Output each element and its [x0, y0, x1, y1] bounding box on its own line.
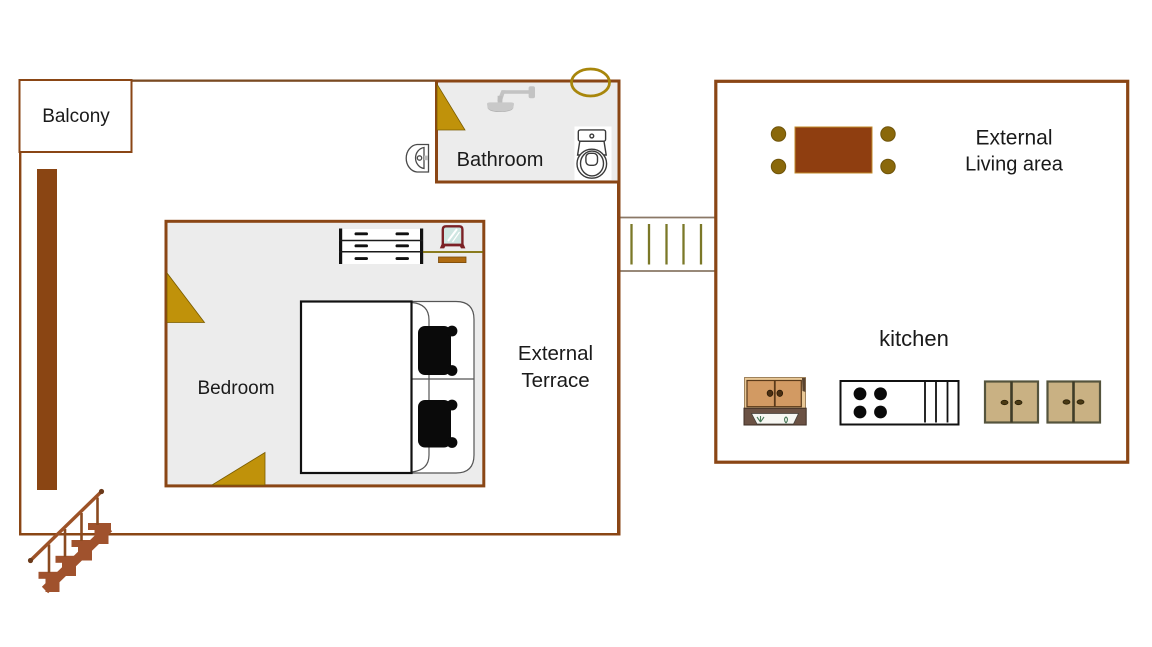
svg-text:Balcony: Balcony	[42, 106, 110, 127]
svg-text:kitchen: kitchen	[879, 326, 949, 351]
svg-text:External: External	[975, 127, 1052, 150]
svg-text:Bathroom: Bathroom	[457, 149, 544, 171]
svg-text:Living area: Living area	[965, 154, 1064, 176]
svg-text:Terrace: Terrace	[521, 369, 589, 392]
svg-text:Bedroom: Bedroom	[197, 378, 274, 399]
svg-text:External: External	[518, 342, 593, 365]
